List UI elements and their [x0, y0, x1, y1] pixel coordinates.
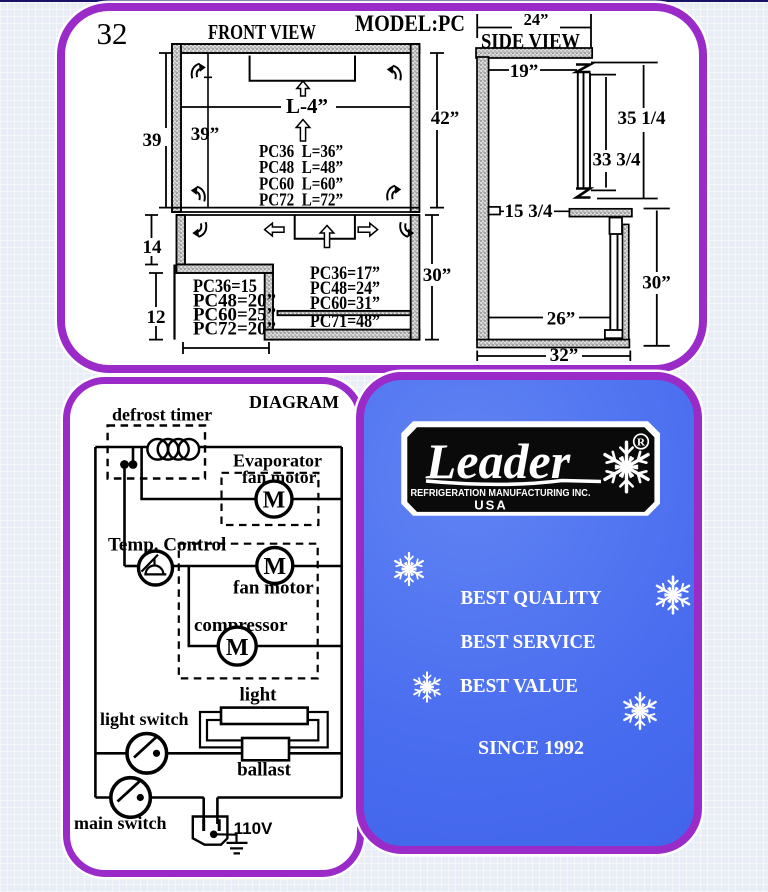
svg-text:12: 12: [147, 307, 166, 328]
svg-text:ballast: ballast: [237, 760, 292, 781]
svg-text:M: M: [263, 554, 286, 580]
svg-text:fan motor: fan motor: [233, 578, 314, 599]
svg-text:32: 32: [97, 16, 128, 51]
svg-text:30”: 30”: [642, 273, 671, 294]
svg-text:main switch: main switch: [74, 813, 167, 833]
svg-text:110V: 110V: [234, 819, 273, 838]
svg-text:light switch: light switch: [100, 709, 189, 729]
svg-text:PC72=20”: PC72=20”: [193, 320, 276, 340]
svg-text:DIAGRAM: DIAGRAM: [249, 392, 339, 412]
svg-text:39”: 39”: [191, 124, 220, 145]
svg-text:BEST QUALITY: BEST QUALITY: [461, 587, 603, 609]
svg-text:defrost timer: defrost timer: [112, 405, 212, 425]
svg-text:30”: 30”: [423, 265, 452, 286]
svg-text:FRONT VIEW: FRONT VIEW: [208, 20, 316, 44]
svg-text:PC71=48”: PC71=48”: [310, 312, 380, 332]
svg-text:39: 39: [143, 130, 162, 151]
svg-text:Temp. Control: Temp. Control: [108, 535, 226, 556]
svg-text:R: R: [637, 437, 646, 449]
svg-text:32”: 32”: [550, 345, 579, 361]
svg-text:BEST SERVICE: BEST SERVICE: [461, 631, 596, 653]
svg-text:14: 14: [143, 237, 163, 258]
svg-text:26”: 26”: [547, 309, 576, 330]
svg-text:BEST VALUE: BEST VALUE: [460, 675, 578, 697]
svg-text:USA: USA: [474, 498, 507, 513]
svg-text:35 1/4: 35 1/4: [617, 108, 666, 129]
svg-text:L-4”: L-4”: [286, 94, 328, 118]
svg-text:33 3/4: 33 3/4: [592, 150, 641, 171]
svg-text:24”: 24”: [524, 11, 549, 29]
svg-text:42”: 42”: [431, 108, 460, 129]
svg-text:light: light: [240, 685, 278, 706]
svg-text:M: M: [226, 635, 249, 661]
svg-text:PC72 L=72”: PC72 L=72”: [259, 190, 343, 210]
svg-text:M: M: [263, 488, 286, 514]
svg-text:PC60=31”: PC60=31”: [310, 294, 380, 314]
svg-text:19”: 19”: [510, 61, 539, 82]
svg-text:15 3/4: 15 3/4: [504, 201, 553, 222]
svg-text:SINCE 1992: SINCE 1992: [478, 737, 584, 759]
svg-text:MODEL:PC: MODEL:PC: [355, 11, 465, 36]
